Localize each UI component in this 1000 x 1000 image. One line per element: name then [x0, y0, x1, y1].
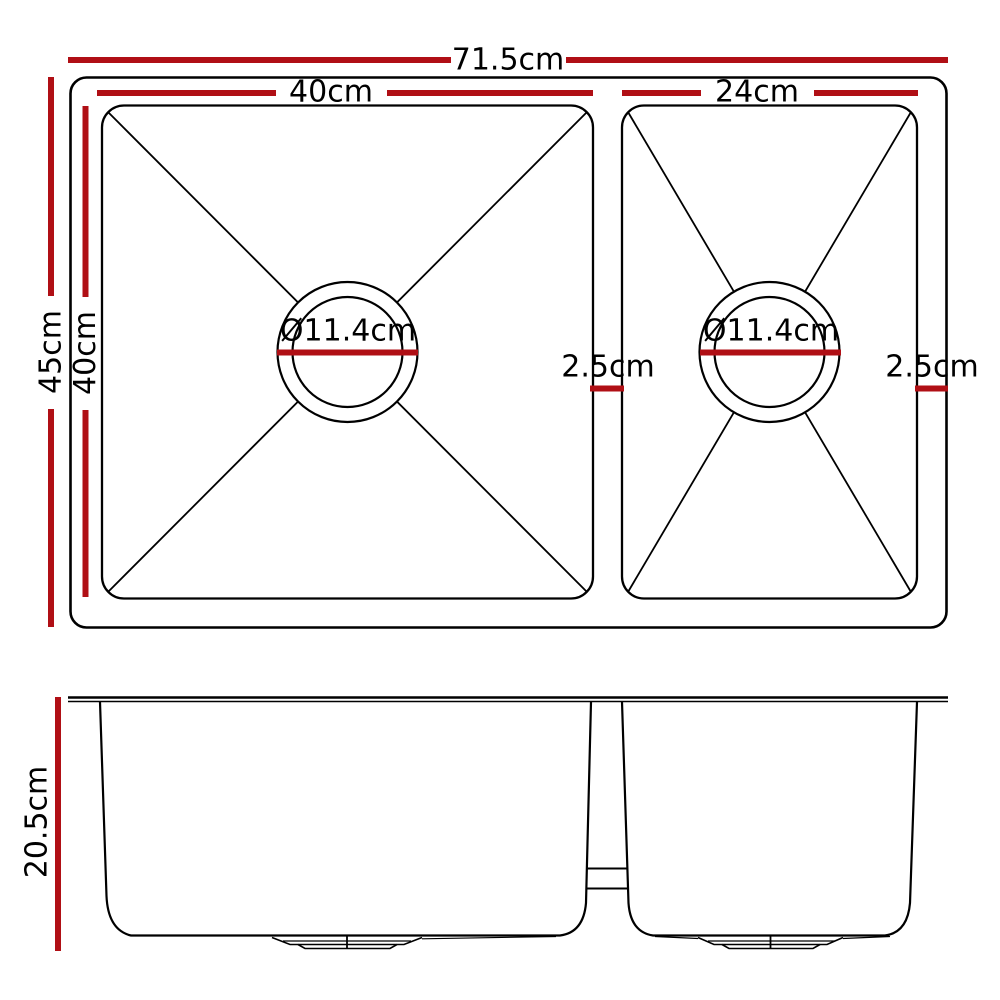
bottom-slope-line	[655, 937, 698, 939]
dim-left-bowl-depth: 40cm	[68, 106, 103, 597]
side-left-drain	[272, 936, 556, 949]
dim-overall-depth: 45cm	[34, 77, 69, 627]
left-bowl-width-label: 40cm	[289, 75, 373, 110]
overall-width-label: 71.5cm	[452, 43, 565, 78]
bottom-slope-line	[843, 937, 890, 939]
dim-right-bowl-width: 24cm	[622, 75, 918, 110]
side-right-drain	[655, 936, 890, 949]
side-depth-label: 20.5cm	[20, 766, 55, 879]
side-left-bowl-profile	[100, 702, 591, 936]
dim-divider-gap: 2.5cm	[561, 350, 654, 389]
dim-right-gap: 2.5cm	[885, 350, 978, 389]
bottom-slope-line	[422, 937, 556, 939]
dim-side-depth: 20.5cm	[20, 697, 59, 951]
dim-overall-width: 71.5cm	[68, 43, 948, 78]
top-view: 71.5cm 40cm 24cm 45cm 40cm	[34, 43, 979, 628]
dim-left-drain: Ø11.4cm	[277, 314, 418, 353]
left-drain-label: Ø11.4cm	[280, 314, 416, 349]
right-drain-label: Ø11.4cm	[703, 314, 839, 349]
sink-dimension-diagram: 71.5cm 40cm 24cm 45cm 40cm	[0, 0, 1000, 1000]
left-bowl-depth-label: 40cm	[68, 311, 103, 395]
divider-gap-label: 2.5cm	[561, 350, 654, 385]
side-view: 20.5cm	[20, 697, 949, 951]
side-right-bowl-profile	[622, 702, 917, 936]
dim-right-drain: Ø11.4cm	[700, 314, 841, 353]
diagram-svg: 71.5cm 40cm 24cm 45cm 40cm	[0, 0, 1000, 1000]
overall-depth-label: 45cm	[34, 310, 69, 394]
dim-left-bowl-width: 40cm	[97, 75, 593, 110]
right-bowl-width-label: 24cm	[715, 75, 799, 110]
right-gap-label: 2.5cm	[885, 350, 978, 385]
